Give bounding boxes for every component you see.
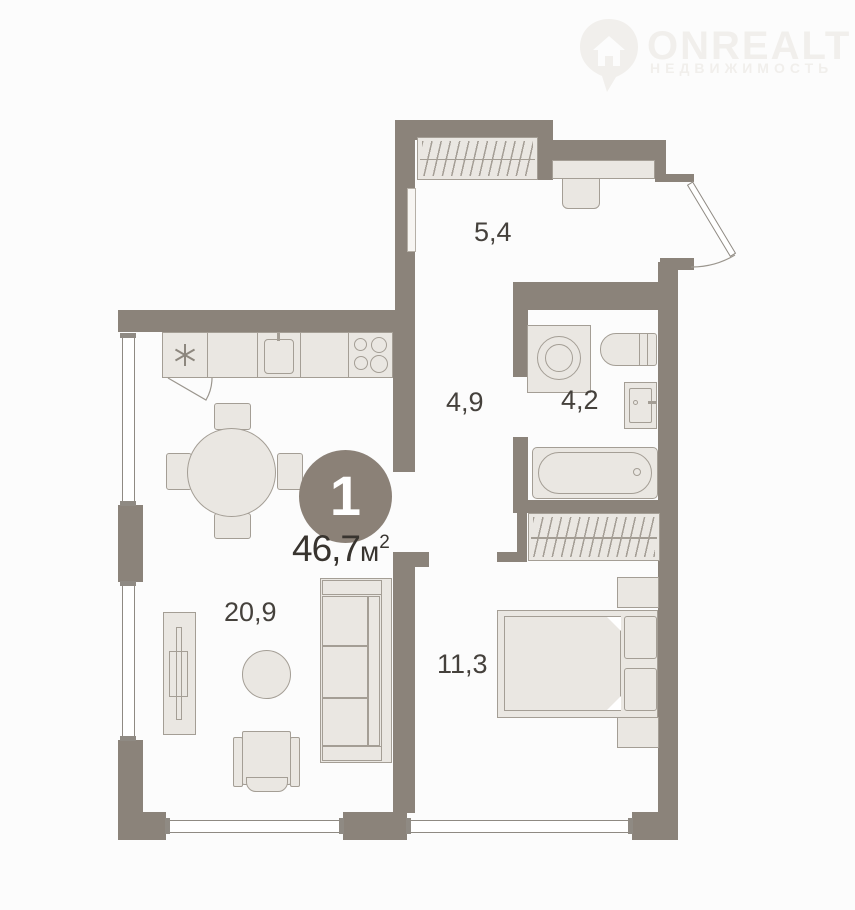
- toilet-tank-line: [647, 334, 648, 365]
- pillow: [624, 616, 657, 659]
- dining-chair: [277, 453, 303, 490]
- nightstand: [617, 717, 659, 748]
- electric-panel: [407, 188, 416, 252]
- wardrobe-rail: [420, 159, 535, 161]
- total-area-value: 46,7: [292, 528, 360, 569]
- bedroom-wardrobe: [528, 513, 660, 561]
- wall-segment: [513, 500, 663, 513]
- sofa-back-line: [381, 584, 382, 758]
- tv-shelf: [169, 651, 188, 697]
- sofa-armrest: [322, 746, 382, 761]
- basin-bowl: [629, 388, 652, 423]
- bathtub-drain: [633, 468, 641, 476]
- door-jamb: [497, 552, 527, 562]
- total-area-label: 46,7м2: [292, 528, 390, 570]
- wall-segment: [415, 552, 429, 567]
- wall-segment: [632, 812, 678, 840]
- armchair-armrest: [290, 737, 300, 787]
- door-jamb: [664, 174, 694, 182]
- kitchen-cabinet: [300, 332, 349, 378]
- fridge-door-swing-arc: [160, 375, 220, 410]
- hall-console: [562, 178, 600, 209]
- pillow: [624, 668, 657, 711]
- kitchen-cabinet: [207, 332, 258, 378]
- window: [122, 334, 135, 505]
- floor-plan-canvas: ONREALT НЕДВИЖИМОСТЬ: [0, 0, 855, 910]
- nightstand: [617, 577, 659, 608]
- wall-segment: [118, 812, 166, 840]
- window: [166, 820, 343, 833]
- window: [407, 820, 632, 833]
- area-label-entry-hall: 5,4: [474, 217, 512, 248]
- wall-segment: [393, 552, 415, 813]
- entry-wardrobe: [417, 137, 538, 180]
- hall-counter: [552, 160, 655, 179]
- armchair-cushion: [246, 777, 288, 792]
- toilet: [600, 333, 657, 366]
- house-pin-icon: [577, 16, 641, 94]
- wall-segment: [343, 812, 407, 840]
- window: [122, 582, 135, 740]
- sink-basin: [264, 339, 294, 374]
- wall-segment: [513, 282, 528, 377]
- wardrobe-rail: [531, 537, 657, 539]
- wall-segment: [658, 262, 678, 840]
- sofa-armrest: [322, 580, 382, 595]
- wall-segment: [393, 332, 415, 472]
- basin-drain: [633, 400, 638, 405]
- dining-chair: [214, 403, 251, 430]
- wall-segment: [118, 505, 143, 582]
- toilet-tank-line: [639, 334, 640, 365]
- stove: [348, 332, 393, 378]
- total-area-exponent: 2: [379, 532, 390, 553]
- sofa-seat: [322, 646, 368, 698]
- watermark-logo: ONREALT НЕДВИЖИМОСТЬ: [577, 14, 847, 99]
- entrance-door-leaf: [687, 181, 736, 257]
- snowflake-icon: [174, 344, 196, 366]
- total-area-unit: м: [360, 536, 379, 567]
- burner: [370, 355, 388, 373]
- basin-faucet: [648, 401, 657, 404]
- area-label-living: 20,9: [224, 597, 277, 628]
- area-label-bedroom: 11,3: [437, 649, 488, 680]
- burner: [371, 337, 387, 353]
- sofa-backrest: [368, 596, 380, 746]
- coffee-table: [242, 650, 291, 699]
- area-label-corridor: 4,9: [446, 387, 484, 418]
- wall-segment: [513, 282, 663, 310]
- burner: [354, 356, 368, 370]
- wall-segment: [552, 140, 666, 160]
- area-label-bathroom: 4,2: [561, 385, 599, 416]
- washer-drum-inner: [545, 344, 573, 372]
- sofa-seat: [322, 698, 368, 746]
- mattress: [504, 616, 621, 711]
- sink-faucet: [277, 332, 280, 341]
- sofa-seat: [322, 596, 368, 646]
- wall-segment: [118, 310, 415, 332]
- burner: [354, 338, 367, 351]
- dining-table: [187, 428, 276, 517]
- watermark-subtitle: НЕДВИЖИМОСТЬ: [650, 60, 833, 76]
